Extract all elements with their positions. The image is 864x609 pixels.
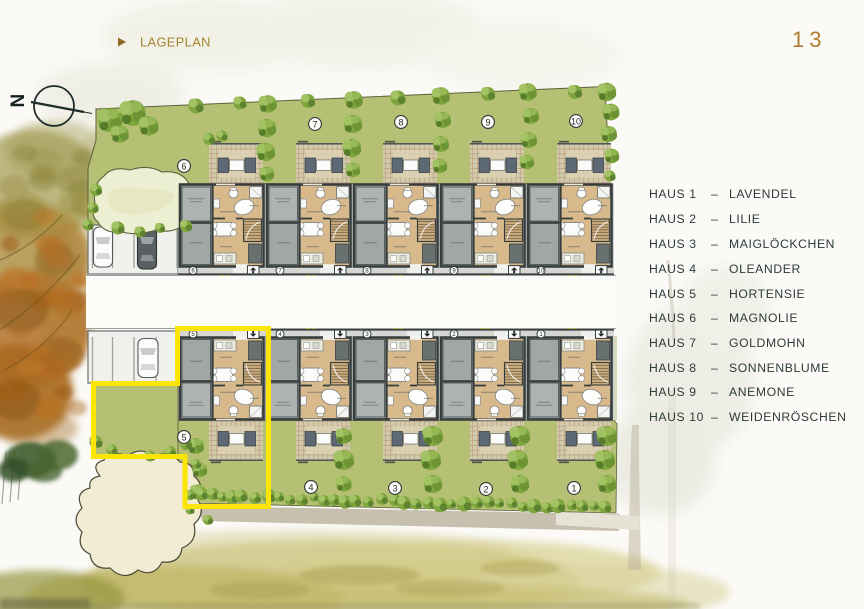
svg-text:2: 2 — [483, 484, 488, 494]
svg-text:HAUS 5: HAUS 5 — [649, 287, 697, 301]
svg-text:–: – — [711, 262, 718, 276]
svg-text:–: – — [711, 336, 718, 350]
svg-text:HAUS 1: HAUS 1 — [649, 187, 697, 201]
svg-text:5: 5 — [181, 432, 186, 442]
svg-text:HAUS 3: HAUS 3 — [649, 237, 697, 251]
svg-text:GOLDMOHN: GOLDMOHN — [729, 336, 806, 350]
svg-text:LAVENDEL: LAVENDEL — [729, 187, 797, 201]
svg-text:OLEANDER: OLEANDER — [729, 262, 801, 276]
svg-text:–: – — [711, 187, 718, 201]
svg-text:7: 7 — [312, 119, 317, 129]
svg-text:13: 13 — [792, 27, 826, 52]
svg-text:LILIE: LILIE — [729, 212, 760, 226]
svg-text:ANEMONE: ANEMONE — [729, 385, 795, 399]
svg-text:HAUS 4: HAUS 4 — [649, 262, 697, 276]
svg-text:4: 4 — [308, 482, 313, 492]
svg-text:WEIDENRÖSCHEN: WEIDENRÖSCHEN — [729, 410, 847, 424]
svg-text:HAUS 8: HAUS 8 — [649, 361, 697, 375]
svg-text:SONNENBLUME: SONNENBLUME — [729, 361, 830, 375]
svg-text:10: 10 — [571, 116, 581, 126]
svg-text:10: 10 — [538, 269, 545, 275]
svg-text:1: 1 — [571, 483, 576, 493]
svg-text:MAIGLÖCKCHEN: MAIGLÖCKCHEN — [729, 237, 835, 251]
svg-text:HAUS 7: HAUS 7 — [649, 336, 697, 350]
svg-text:HORTENSIE: HORTENSIE — [729, 287, 805, 301]
svg-text:LAGEPLAN: LAGEPLAN — [140, 35, 211, 50]
svg-text:9: 9 — [485, 117, 490, 127]
svg-text:HAUS 2: HAUS 2 — [649, 212, 697, 226]
svg-text:–: – — [711, 311, 718, 325]
svg-text:–: – — [711, 237, 718, 251]
svg-text:–: – — [711, 410, 718, 424]
svg-text:6: 6 — [181, 161, 186, 171]
svg-text:N: N — [8, 94, 29, 108]
svg-text:3: 3 — [392, 483, 397, 493]
svg-text:MAGNOLIE: MAGNOLIE — [729, 311, 798, 325]
svg-text:–: – — [711, 385, 718, 399]
svg-text:–: – — [711, 287, 718, 301]
svg-text:HAUS 9: HAUS 9 — [649, 385, 697, 399]
svg-text:HAUS 10: HAUS 10 — [649, 410, 704, 424]
svg-text:–: – — [711, 361, 718, 375]
svg-text:–: – — [711, 212, 718, 226]
svg-text:8: 8 — [398, 117, 403, 127]
svg-text:HAUS 6: HAUS 6 — [649, 311, 697, 325]
